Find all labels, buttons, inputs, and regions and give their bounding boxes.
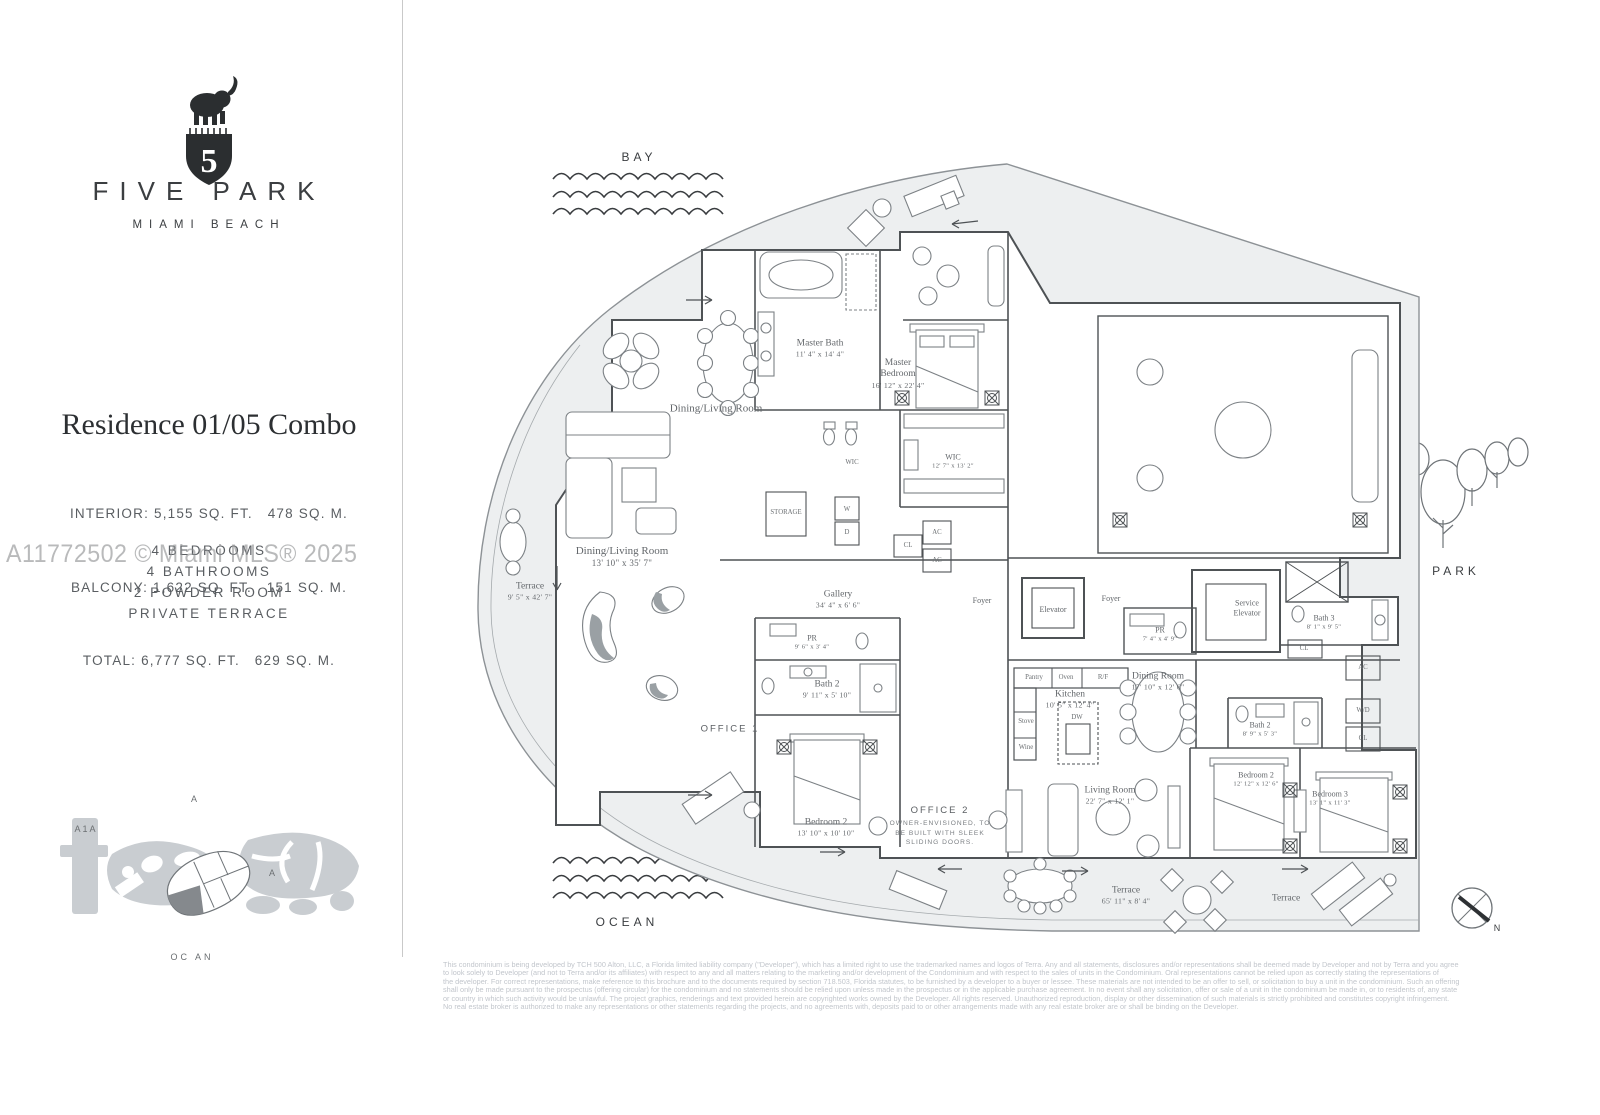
stat-interior: INTERIOR: 5,155 SQ. FT. 478 SQ. M. bbox=[0, 502, 418, 527]
mls-watermark: A11772502 © Miami MLS® 2025 bbox=[6, 540, 357, 569]
panel-divider bbox=[402, 0, 403, 957]
bay-label: BAY bbox=[621, 150, 656, 164]
brand-name: FIVE PARK bbox=[0, 176, 418, 207]
ocean-label: OCEAN bbox=[596, 915, 659, 929]
floorplan-page: 5 bbox=[0, 0, 1600, 1115]
svg-text:5: 5 bbox=[201, 143, 218, 180]
stat-total: TOTAL: 6,777 SQ. FT. 629 SQ. M. bbox=[0, 649, 418, 674]
north-label: N bbox=[1494, 923, 1501, 933]
disclaimer-text: This condominium is being developed by T… bbox=[443, 961, 1521, 1011]
compass-icon bbox=[1452, 888, 1492, 928]
bay-waves-icon bbox=[553, 174, 723, 215]
residence-title: Residence 01/05 Combo bbox=[0, 408, 418, 442]
site-label-ocean: OC AN bbox=[170, 952, 213, 962]
feature-powder-room: 2 POWDER ROOM bbox=[0, 582, 418, 603]
site-label-mid: A bbox=[269, 868, 277, 878]
site-label-top: A bbox=[191, 794, 199, 804]
feature-terrace: PRIVATE TERRACE bbox=[0, 603, 418, 624]
site-map-graphic bbox=[60, 818, 359, 925]
site-label-a1a: A1A bbox=[74, 824, 97, 834]
five-park-logo-icon: 5 bbox=[186, 76, 237, 185]
brand-location: MIAMI BEACH bbox=[0, 219, 418, 231]
park-label: PARK bbox=[1432, 564, 1480, 578]
